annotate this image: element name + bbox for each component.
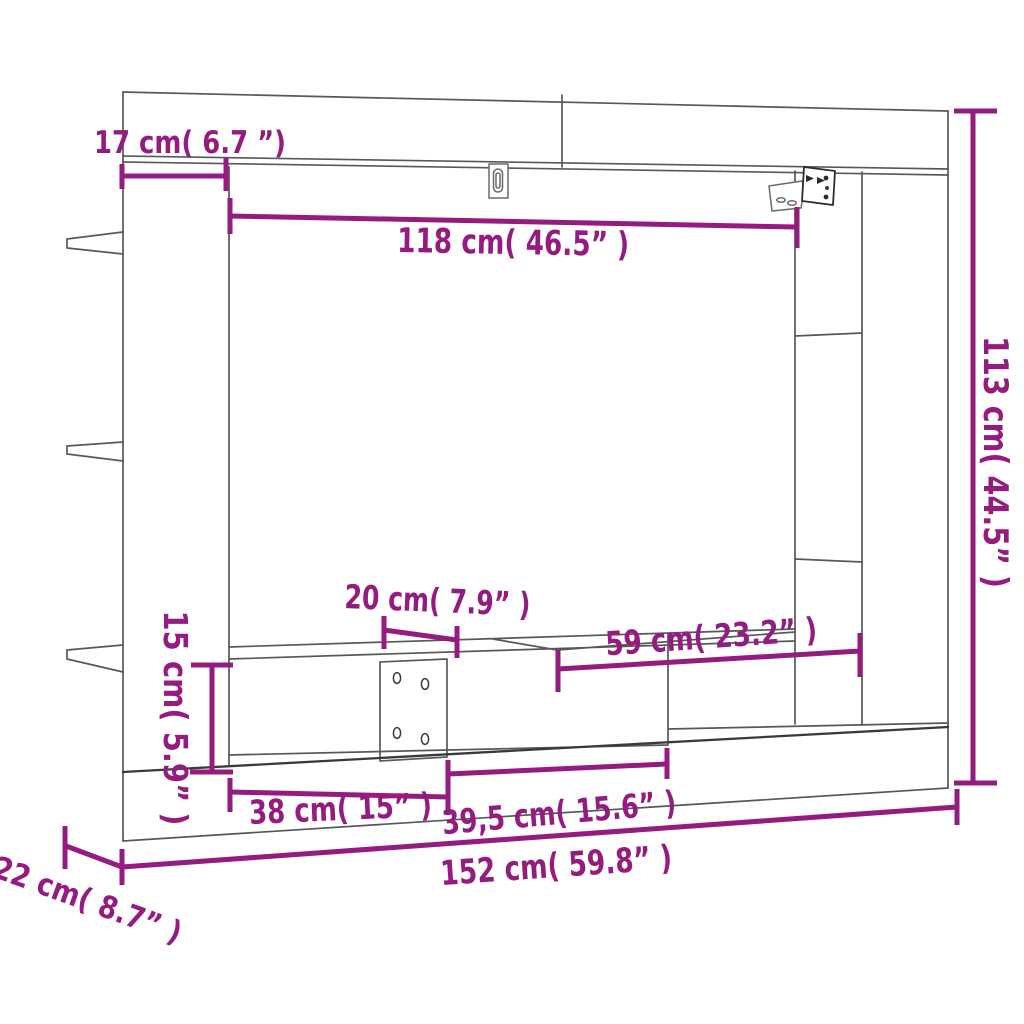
diagram-canvas: 17 cm( 6.7 ”) 118 cm( 46.5” ) 113 cm( 44… [0,0,1024,1024]
wall-shelves-left [67,232,123,672]
mount-bracket-icon [769,167,835,211]
cabinet-drawing [67,92,948,841]
dimension-label: 152 cm( 59.8” ) [439,838,673,894]
screw-hole [393,728,400,739]
bracket-hole [824,195,829,200]
dimension-label: 38 cm( 15” ) [248,785,433,832]
divider-panel [380,659,447,761]
screw-hole [421,734,428,745]
bracket-hole [824,176,829,181]
dimension-label: 113 cm( 44.5” ) [975,336,1015,588]
dim-shelf-depth: 20 cm( 7.9” ) [344,577,532,658]
dim-total-height: 113 cm( 44.5” ) [954,111,1015,783]
dim-top-offset: 17 cm( 6.7 ”) [94,125,286,191]
dimension-label: 15 cm( 5.9” ) [156,611,195,826]
bracket-plate [802,167,835,205]
tv-shelf [229,629,948,755]
screw-holes [393,673,428,745]
keyhole-slot-icon [489,164,508,198]
dimension-diagram: 17 cm( 6.7 ”) 118 cm( 46.5” ) 113 cm( 44… [0,0,1024,1024]
dim-niche-width: 59 cm( 23.2” ) [558,610,860,692]
dimension-line [65,826,122,869]
bracket-hole [825,186,829,190]
dim-inner-width: 118 cm( 46.5” ) [230,198,797,265]
dimension-label: 17 cm( 6.7 ”) [94,125,286,161]
keyhole-slot-inner [496,173,500,188]
bottom-front-edge [123,727,948,772]
dim-left-compartment: 38 cm( 15” ) [230,778,448,832]
screw-hole [393,673,400,684]
bracket-slot [788,201,796,206]
dimension-label: 118 cm( 46.5” ) [397,221,630,265]
bracket-slot [777,198,785,203]
dimension-line [190,665,233,772]
bracket-arm [769,181,807,211]
screw-hole [421,679,428,690]
dimension-label: 20 cm( 7.9” ) [344,577,532,624]
dim-shelf-height: 15 cm( 5.9” ) [156,611,233,826]
dim-depth: 22 cm( 8.7” ) [0,826,187,951]
